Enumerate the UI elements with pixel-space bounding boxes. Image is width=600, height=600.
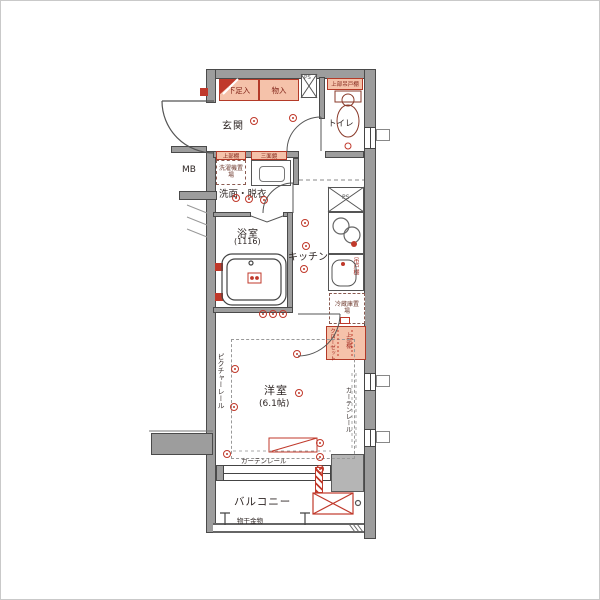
wall-left-bottom-stub — [151, 433, 213, 455]
mirror-label-box: 三面鏡 — [251, 151, 287, 160]
light-symbol — [260, 196, 268, 204]
wall-bath-north-a — [213, 212, 251, 217]
light-symbol — [259, 310, 267, 318]
toilet-shelf: 上部吊戸棚 — [327, 78, 363, 90]
genkan-label: 玄関 — [222, 117, 244, 132]
vanity — [251, 160, 291, 186]
window-toilet — [364, 127, 376, 149]
picture-rail-label: ピクチャーレール — [216, 353, 226, 455]
light-symbol — [231, 365, 239, 373]
escape-hatch-icon — [313, 493, 361, 514]
toilet-label: トイレ — [328, 117, 354, 129]
wall-washroom-east — [293, 158, 299, 185]
washer-label: 洗濯機置場 — [219, 166, 243, 180]
light-symbol — [301, 219, 309, 227]
fridge-outlet — [340, 317, 350, 324]
room-size-label: (6.1帖) — [259, 396, 289, 409]
light-symbol — [295, 389, 303, 397]
storage-box: 物入 — [259, 79, 299, 101]
light-symbol — [293, 350, 301, 358]
bath-control-icon — [248, 273, 261, 283]
light-symbol — [300, 265, 308, 273]
switch-symbol — [215, 293, 223, 301]
toilet-door-icon — [287, 117, 321, 151]
fridge-label: 冷蔵庫置場 — [334, 302, 360, 316]
light-symbol — [279, 310, 287, 318]
wall-left-upper — [206, 69, 216, 103]
curtain-rail-bottom-label: カーテンレール — [241, 455, 287, 465]
light-symbol — [289, 114, 297, 122]
kitchen-label: キッチン — [288, 248, 328, 263]
wall-left-main — [206, 151, 216, 533]
storage-label: 物入 — [272, 85, 287, 96]
switch-symbol — [215, 263, 223, 271]
pipe-space-top-label: PS — [304, 75, 311, 81]
washer-shelf: 上部棚 — [216, 151, 246, 160]
switch-symbol — [200, 88, 208, 96]
hanging-cupboard-label: 吊戸棚 — [351, 257, 360, 289]
window-sill-2 — [376, 431, 390, 443]
mirror-label: 三面鏡 — [261, 152, 278, 160]
stove — [328, 212, 364, 254]
shoe-box: 下足入 — [219, 79, 259, 101]
mb-hatch-icon — [187, 205, 207, 237]
light-symbol — [250, 117, 258, 125]
window-room-east-2 — [364, 429, 376, 447]
outlet-symbol — [316, 439, 324, 447]
curtain-rail-side-label: カーテンレール — [343, 387, 353, 433]
wall-balcony-corner-block — [331, 454, 364, 492]
window-sill-1 — [376, 375, 390, 387]
window-room-east-1 — [364, 373, 376, 391]
wall-toilet-south — [325, 151, 364, 158]
light-symbol — [245, 195, 253, 203]
vanity-sink — [259, 166, 285, 182]
bathroom-door-icon — [251, 216, 283, 222]
wall-toilet-west — [319, 77, 325, 119]
light-symbol — [302, 242, 310, 250]
light-symbol — [232, 194, 240, 202]
wall-mb-stub-bottom — [179, 191, 217, 200]
room-dashed-outline — [231, 339, 355, 459]
window-sill-toilet — [376, 129, 390, 141]
bathroom-size-label: (1116) — [234, 237, 261, 246]
outlet-symbol — [316, 453, 324, 461]
balcony-railing — [213, 523, 364, 533]
balcony-label: バルコニー — [234, 494, 291, 509]
outlet-symbol — [223, 450, 231, 458]
kitchen-ps-label: PS — [342, 194, 349, 201]
outlet-symbol — [316, 465, 324, 473]
toilet-shelf-label: 上部吊戸棚 — [331, 80, 359, 88]
mb-label: MB — [182, 165, 196, 175]
light-symbol — [269, 310, 277, 318]
light-symbol — [230, 403, 238, 411]
floorplan-canvas: 下足入 物入 PS 上部吊戸棚 上部棚 三面鏡 洗濯機置場 PS 吊戸棚 冷蔵庫… — [0, 0, 600, 600]
washer-space: 洗濯機置場 — [216, 160, 246, 185]
washer-shelf-label: 上部棚 — [223, 152, 240, 160]
wall-mb-stub-top — [171, 146, 207, 153]
bathtub-icon — [222, 254, 286, 305]
laundry-label: 物干金物 — [237, 515, 263, 525]
shoe-box-label: 下足入 — [228, 85, 251, 96]
